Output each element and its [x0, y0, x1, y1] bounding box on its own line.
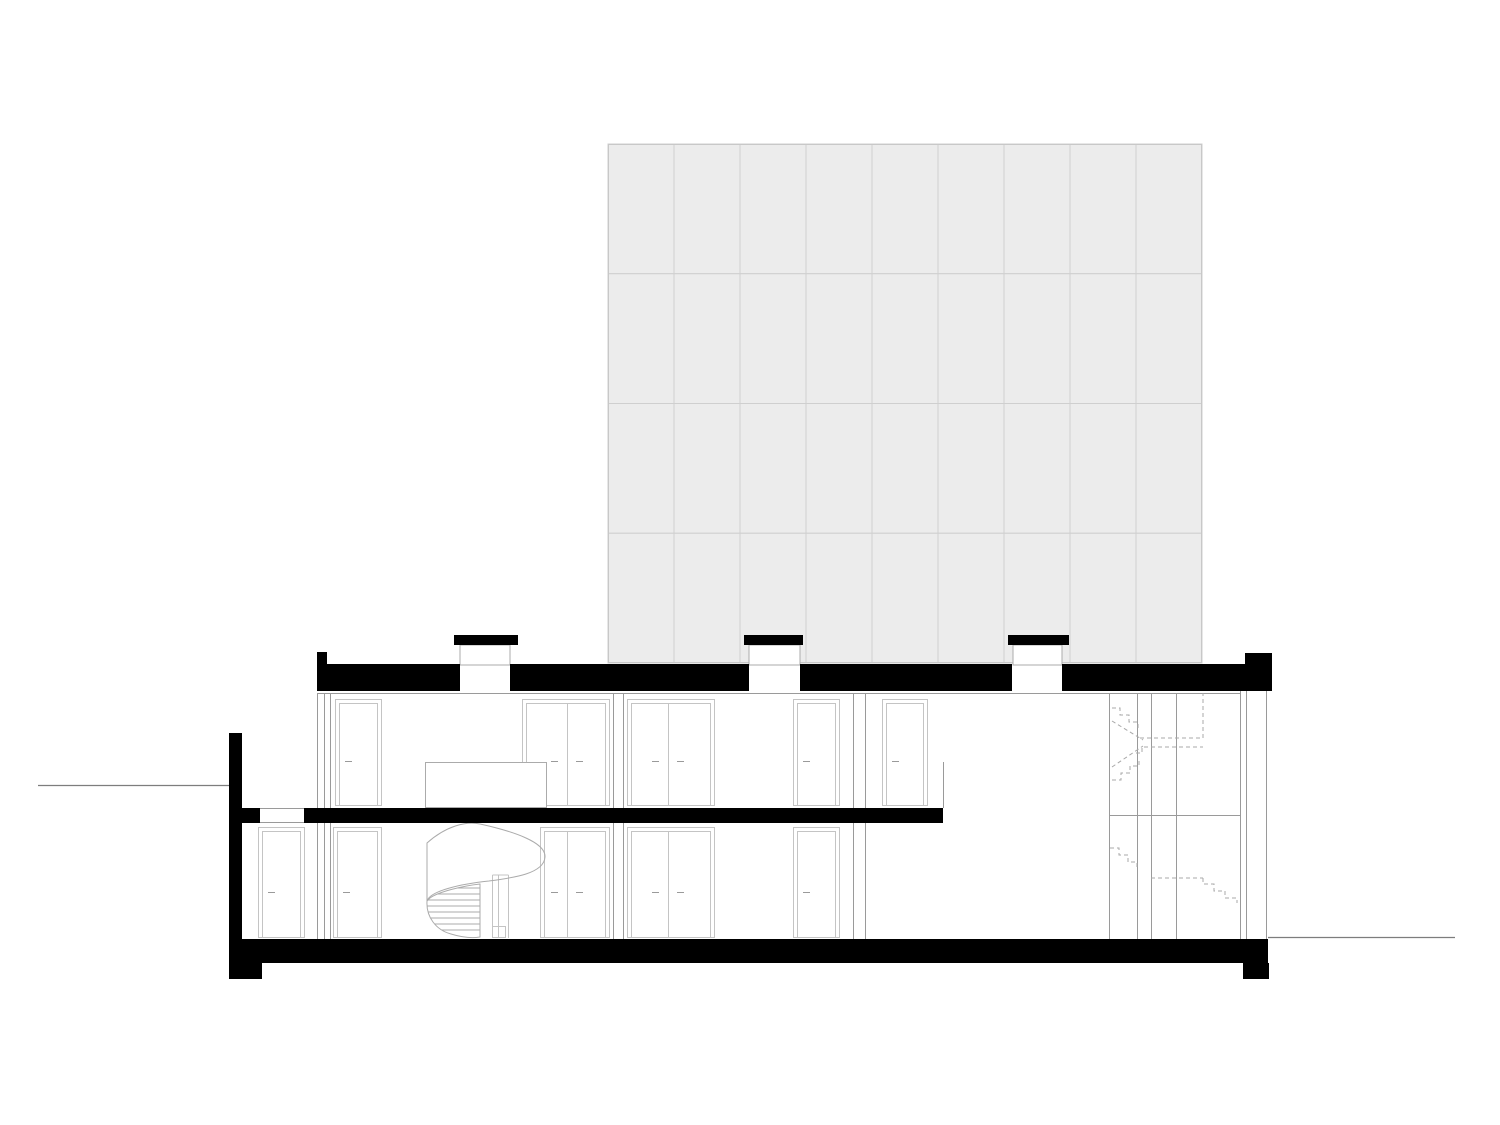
door-upper — [336, 700, 382, 806]
door-lower — [259, 828, 305, 938]
door-lower — [334, 828, 382, 938]
facade-panel — [608, 533, 674, 663]
facade-panel — [1070, 404, 1136, 534]
door-frame-outer — [541, 828, 610, 938]
facade-panel — [938, 404, 1004, 534]
parapet-left — [317, 652, 327, 691]
skylight — [744, 635, 803, 665]
footing-left — [229, 963, 262, 979]
door-upper — [883, 700, 928, 806]
lower-flight-steps-b — [1203, 878, 1237, 903]
door-lower — [794, 828, 840, 938]
facade-panel — [1136, 533, 1202, 663]
door-upper — [628, 700, 715, 807]
spiral-stair — [420, 823, 545, 937]
facade-panel — [872, 404, 938, 534]
spiral-ribbon — [427, 823, 545, 901]
stair-door — [493, 875, 509, 938]
facade-panel — [806, 274, 872, 404]
door-lower — [541, 828, 610, 939]
skylight-shaft — [460, 645, 510, 665]
areaway-slab-opening — [260, 809, 304, 823]
upper-flight-stringer-a — [1112, 721, 1143, 740]
facade-panel — [674, 533, 740, 663]
upper-landing-line — [1140, 693, 1203, 738]
facade-panel — [1070, 274, 1136, 404]
skylight-cap — [744, 635, 803, 645]
upper-flight-steps-a — [1112, 708, 1138, 730]
facade-panel — [608, 274, 674, 404]
roof-slab — [800, 664, 1012, 691]
mid-floor-slab — [242, 808, 260, 823]
skylight — [1008, 635, 1069, 665]
facade-panel — [674, 144, 740, 274]
footing-right — [1243, 963, 1269, 979]
door-frame-outer — [628, 700, 715, 806]
facade-panel — [1136, 274, 1202, 404]
door-lower — [628, 828, 715, 939]
facade-panel — [872, 144, 938, 274]
door-frame-inner — [632, 832, 711, 938]
building-section-drawing — [0, 0, 1500, 1125]
bottom-floor-slab — [230, 939, 1268, 963]
upper-flight-stringer-b — [1112, 746, 1143, 767]
facade-panel — [740, 274, 806, 404]
facade-panel — [674, 274, 740, 404]
roof-slab — [1062, 664, 1245, 691]
facade-panel — [938, 144, 1004, 274]
door-upper — [794, 700, 840, 806]
skylight-cap — [1008, 635, 1069, 645]
door-frame-outer — [794, 700, 840, 806]
facade-panel — [1004, 274, 1070, 404]
skylight-shaft — [1013, 645, 1062, 665]
retaining-wall — [229, 733, 242, 963]
facade-panel — [1136, 144, 1202, 274]
door-frame-outer — [334, 828, 382, 938]
facade-panel — [1004, 144, 1070, 274]
facade-panel — [740, 404, 806, 534]
roof-slab — [510, 664, 749, 691]
facade-grid — [608, 144, 1202, 663]
door-frame-inner — [340, 704, 378, 806]
door-frame-inner — [887, 704, 924, 806]
parapet-right — [1245, 653, 1272, 691]
mid-floor-slab — [304, 808, 943, 823]
door-frame-outer — [794, 828, 840, 938]
door-frame-inner — [798, 704, 836, 806]
facade-panel — [1004, 404, 1070, 534]
skylight-shaft — [749, 645, 800, 665]
upper-flight-steps-b — [1112, 759, 1139, 780]
facade-panel — [740, 144, 806, 274]
door-frame-outer — [336, 700, 382, 806]
door-frame-inner — [798, 832, 836, 938]
facade-panel — [806, 144, 872, 274]
facade-panel — [1070, 144, 1136, 274]
lower-flight-steps-a — [1110, 848, 1137, 870]
stair-door-frame — [493, 875, 509, 938]
door-frame-inner — [263, 832, 301, 938]
skylight — [454, 635, 518, 665]
skylight-cap — [454, 635, 518, 645]
section-drawing-canvas — [0, 0, 1500, 1125]
door-frame-outer — [259, 828, 305, 938]
facade-panel — [1070, 533, 1136, 663]
dashed-stairs — [1110, 693, 1237, 903]
facade-panel — [806, 404, 872, 534]
mezzanine-box-outline — [426, 763, 547, 808]
door-frame-inner — [338, 832, 378, 938]
facade-panel — [938, 533, 1004, 663]
door-frame-inner — [545, 832, 606, 938]
facade-panel — [806, 533, 872, 663]
facade-panel — [872, 274, 938, 404]
facade-panel — [872, 533, 938, 663]
right-wall-lines — [1241, 691, 1267, 939]
facade-panel — [674, 404, 740, 534]
facade-panel — [1136, 404, 1202, 534]
spiral-tread-hatch — [420, 888, 482, 930]
facade-panel — [938, 274, 1004, 404]
facade-panel — [608, 144, 674, 274]
door-frame-outer — [883, 700, 928, 806]
mezzanine-box — [426, 763, 547, 808]
facade-panel — [608, 404, 674, 534]
door-frame-outer — [628, 828, 715, 938]
upper-landing-line-2 — [1136, 747, 1203, 753]
roof-slab — [318, 664, 460, 691]
door-frame-inner — [632, 704, 711, 806]
